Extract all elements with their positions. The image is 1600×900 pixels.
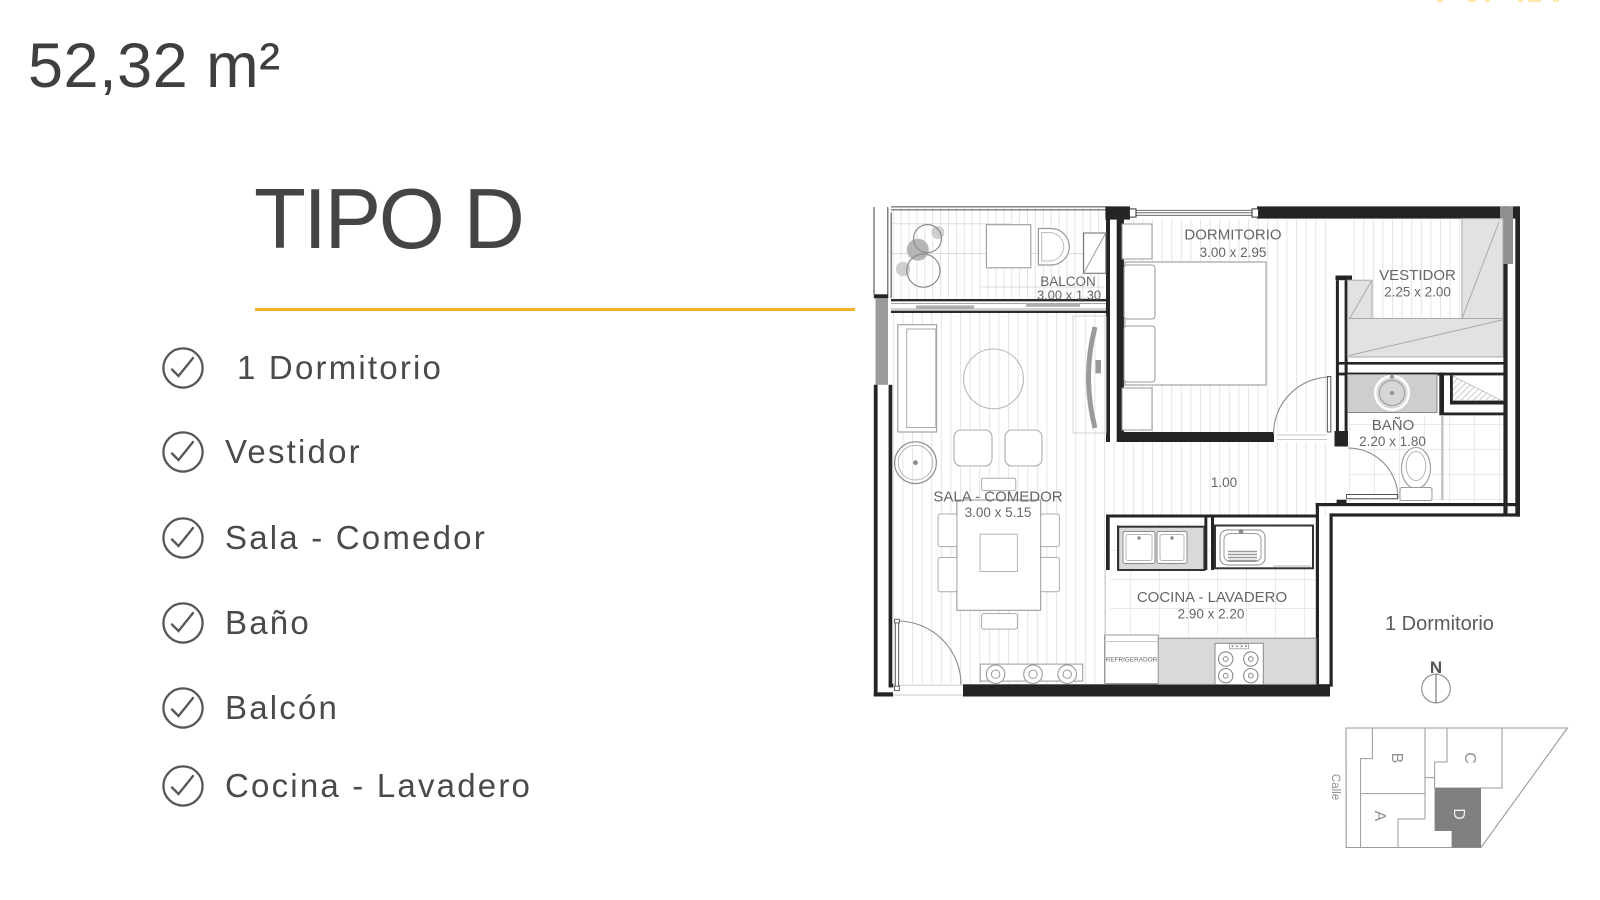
svg-text:SALA - COMEDOR: SALA - COMEDOR bbox=[933, 489, 1062, 506]
svg-text:A: A bbox=[1371, 811, 1388, 822]
svg-text:D: D bbox=[1450, 808, 1467, 820]
svg-text:3.00 x 5.15: 3.00 x 5.15 bbox=[965, 505, 1032, 520]
svg-text:Calle: Calle bbox=[1329, 774, 1341, 800]
svg-text:C: C bbox=[1461, 752, 1478, 764]
svg-text:2.25 x 2.00: 2.25 x 2.00 bbox=[1384, 285, 1451, 300]
svg-text:BAÑO: BAÑO bbox=[1372, 417, 1415, 434]
svg-text:1 Dormitorio: 1 Dormitorio bbox=[1385, 613, 1494, 635]
svg-text:B: B bbox=[1388, 753, 1405, 764]
svg-text:REFRIGERADOR: REFRIGERADOR bbox=[1106, 657, 1158, 664]
svg-text:3.00 x 1.30: 3.00 x 1.30 bbox=[1037, 288, 1101, 303]
svg-text:1.00: 1.00 bbox=[1211, 475, 1237, 490]
svg-text:2.20 x 1.80: 2.20 x 1.80 bbox=[1359, 434, 1426, 449]
svg-text:COCINA - LAVADERO: COCINA - LAVADERO bbox=[1137, 589, 1287, 606]
svg-text:3.00 x 2.95: 3.00 x 2.95 bbox=[1200, 245, 1267, 260]
svg-text:2.90 x 2.20: 2.90 x 2.20 bbox=[1178, 607, 1245, 622]
svg-text:VESTIDOR: VESTIDOR bbox=[1379, 267, 1456, 284]
svg-text:DORMITORIO: DORMITORIO bbox=[1184, 227, 1281, 244]
